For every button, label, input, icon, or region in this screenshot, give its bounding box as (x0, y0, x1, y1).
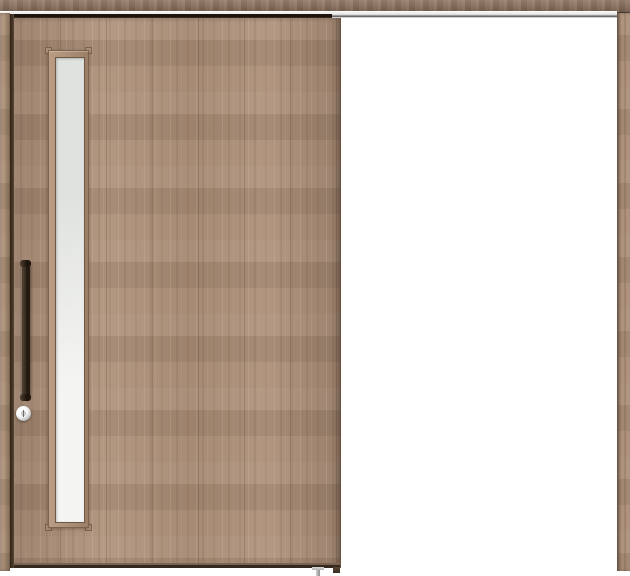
sliding-door-panel (14, 18, 341, 568)
right-frame-casing (617, 13, 630, 571)
left-frame-casing (0, 13, 10, 571)
door-bottom-guide (333, 567, 340, 573)
door-bottom-rail (14, 562, 340, 568)
floor-guide-stem (316, 570, 320, 576)
sliding-door-product-photo (0, 0, 630, 576)
handle-bottom-cap (20, 394, 31, 401)
thumb-turn-lock[interactable] (16, 406, 31, 421)
handle-top-cap (20, 260, 31, 267)
door-bar-handle[interactable] (21, 262, 30, 399)
glass-slit-window (55, 57, 85, 523)
lock-turn-slot (23, 410, 24, 417)
